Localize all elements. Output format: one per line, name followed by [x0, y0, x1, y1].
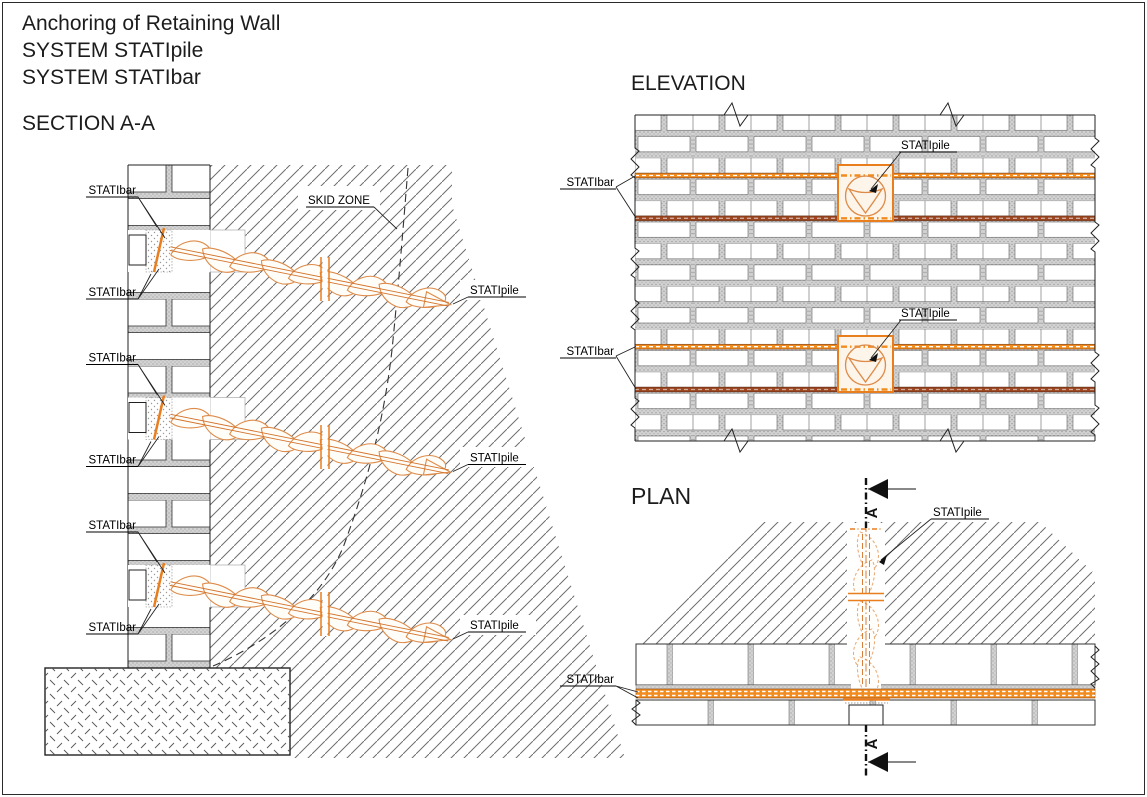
statipile-label: STATIpile: [901, 308, 950, 320]
statibar-label: STATIbar: [89, 185, 137, 197]
statibar-label: STATIbar: [89, 353, 137, 365]
engineering-drawing: SKID ZONE STATIbar STATIbar STATIbar STA…: [0, 0, 1147, 797]
section-letter: A: [864, 507, 881, 518]
statibar-label: STATIbar: [89, 287, 137, 299]
section-marker-top: A: [864, 478, 916, 528]
statipile-label: STATIpile: [901, 140, 950, 152]
plan-statibar-band: [636, 689, 1095, 698]
section-view: SKID ZONE STATIbar STATIbar STATIbar STA…: [45, 165, 625, 758]
statipile-plate-1: [838, 165, 893, 221]
section-letter: A: [864, 738, 881, 749]
statibar-label: STATIbar: [567, 674, 615, 686]
elevation-view: STATIbar STATIbar STATIpile STATIpile: [560, 103, 1099, 452]
plan-view: A A STATIbar STATIpile: [560, 478, 1099, 777]
statipile-plate-2: [838, 336, 893, 392]
statipile-label: STATIpile: [470, 285, 519, 297]
statibar-label: STATIbar: [567, 346, 615, 358]
foundation-block: [45, 668, 290, 755]
statibar-label: STATIbar: [567, 177, 615, 189]
statibar-label: STATIbar: [89, 520, 137, 532]
statibar-label: STATIbar: [89, 622, 137, 634]
skid-zone-text: SKID ZONE: [308, 195, 370, 207]
statipile-label: STATIpile: [933, 507, 982, 519]
statipile-label: STATIpile: [470, 620, 519, 632]
statibar-label: STATIbar: [89, 455, 137, 467]
section-marker-bottom: A: [864, 725, 916, 777]
statibar-labels-elevation: STATIbar STATIbar: [560, 176, 636, 390]
statipile-label: STATIpile: [470, 453, 519, 465]
